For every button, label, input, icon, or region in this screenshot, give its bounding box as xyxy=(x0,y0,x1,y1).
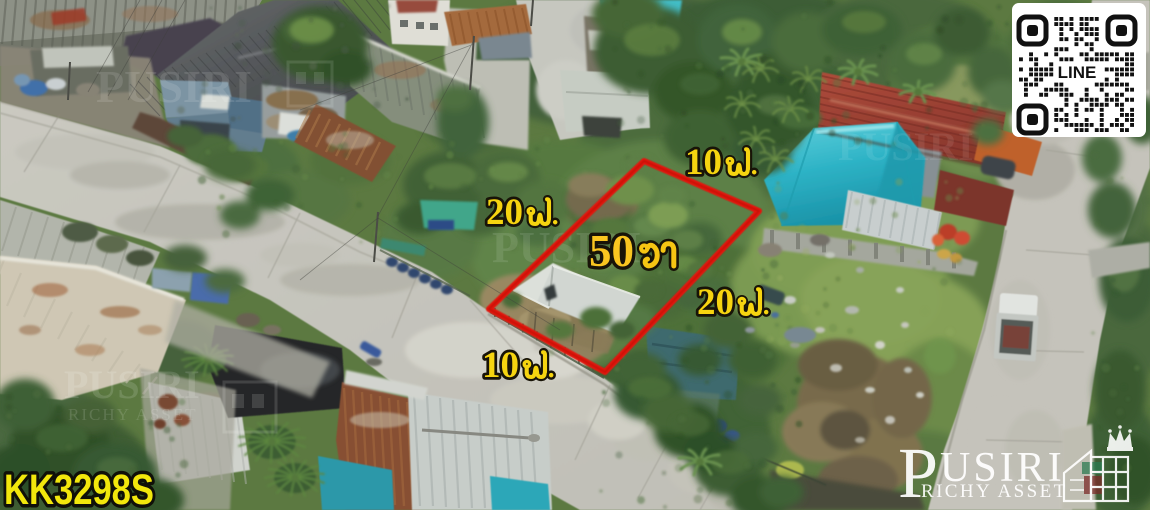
svg-text:RICHY ASSET: RICHY ASSET xyxy=(68,405,198,424)
svg-text:PUSIRI: PUSIRI xyxy=(96,61,252,112)
svg-text:LINE: LINE xyxy=(1058,63,1097,82)
svg-text:10: 10 xyxy=(482,345,519,386)
svg-text:KK3298S: KK3298S xyxy=(4,466,154,510)
svg-text:50: 50 xyxy=(589,226,634,276)
svg-text:PUSIRI: PUSIRI xyxy=(838,124,974,169)
svg-text:20: 20 xyxy=(486,192,523,233)
svg-text:10: 10 xyxy=(685,142,722,183)
svg-text:20: 20 xyxy=(697,282,734,323)
svg-text:PUSIRI: PUSIRI xyxy=(64,362,200,407)
svg-text:RICHY ASSET: RICHY ASSET xyxy=(921,481,1068,502)
